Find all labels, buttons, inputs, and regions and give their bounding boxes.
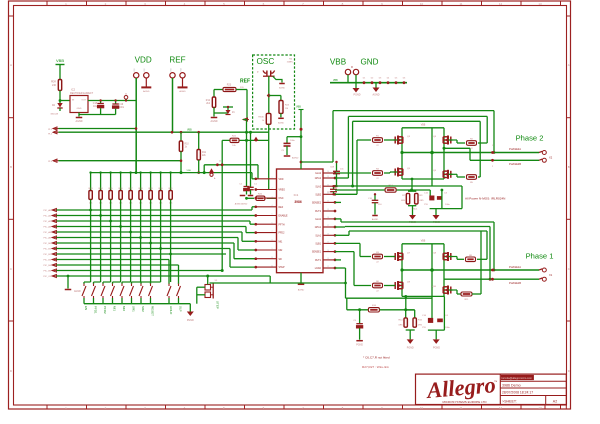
- svg-text:PHASE2A: PHASE2A: [509, 147, 521, 151]
- svg-text:16MHz: 16MHz: [287, 62, 293, 64]
- svg-text:PIC_B5: PIC_B5: [43, 271, 51, 273]
- svg-text:13: 13: [538, 2, 542, 6]
- svg-text:PGND: PGND: [433, 347, 440, 350]
- svg-text:B: B: [10, 165, 12, 169]
- svg-text:3986 Demo: 3986 Demo: [502, 383, 521, 387]
- svg-text:VBB: VBB: [421, 125, 426, 127]
- svg-text:R27,R27 : Wire-link: R27,R27 : Wire-link: [362, 365, 389, 369]
- svg-text:C18: C18: [93, 103, 98, 105]
- svg-text:100n: 100n: [445, 204, 451, 206]
- svg-text:SLP: SLP: [179, 306, 183, 312]
- svg-text:20: 20: [327, 201, 329, 203]
- svg-text:R30D: R30D: [258, 117, 264, 119]
- svg-text:8: 8: [272, 240, 273, 242]
- svg-text:AGND: AGND: [143, 90, 150, 93]
- svg-text:Y5V: Y5V: [424, 204, 429, 206]
- svg-text:PIC_A3: PIC_A3: [43, 226, 51, 229]
- svg-text:RECTIFIER EURECT: RECTIFIER EURECT: [70, 92, 94, 95]
- svg-text:PFD1: PFD1: [94, 306, 98, 314]
- svg-text:HOLD: HOLD: [169, 306, 173, 315]
- svg-text:PGND: PGND: [354, 94, 361, 97]
- svg-text:PIC_A5: PIC_A5: [43, 237, 51, 240]
- svg-text:AGND: AGND: [279, 87, 285, 90]
- svg-text:EN: EN: [84, 306, 88, 310]
- svg-text:OUT1: OUT1: [315, 260, 322, 262]
- svg-text:R10: R10: [185, 144, 190, 146]
- svg-text:AGND: AGND: [298, 289, 305, 292]
- svg-text:1N4148: 1N4148: [50, 114, 58, 116]
- svg-text:PIC_A2: PIC_A2: [43, 220, 51, 223]
- svg-text:B: B: [568, 165, 570, 169]
- svg-text:PGND: PGND: [356, 345, 363, 347]
- svg-text:28/07/2008 18:24:17: 28/07/2008 18:24:17: [502, 391, 533, 395]
- svg-text:15: 15: [327, 242, 329, 244]
- svg-text:PFD2: PFD2: [103, 306, 107, 314]
- svg-text:SLB1: SLB1: [315, 244, 321, 246]
- svg-text:9: 9: [272, 248, 273, 250]
- svg-text:11: 11: [459, 2, 462, 6]
- svg-text:AGND: AGND: [179, 90, 186, 93]
- svg-text:1: 1: [272, 177, 273, 179]
- svg-text:MICROSYSTEMS EUROPE LTD: MICROSYSTEMS EUROPE LTD: [442, 400, 487, 404]
- svg-text:X1: X1: [549, 273, 553, 277]
- svg-text:A: A: [568, 63, 570, 67]
- svg-text:6: 6: [272, 222, 273, 224]
- svg-text:PGND: PGND: [407, 347, 414, 350]
- svg-text:PIC_B0: PIC_B0: [43, 243, 51, 245]
- svg-text:REF: REF: [169, 56, 185, 65]
- svg-text:SR1: SR1: [132, 306, 136, 312]
- svg-text:U$2: U$2: [144, 68, 146, 71]
- svg-text:SR: SR: [279, 259, 283, 261]
- svg-text:VBB: VBB: [296, 106, 301, 109]
- svg-text:GND: GND: [77, 108, 82, 110]
- svg-text:OSC: OSC: [279, 198, 284, 200]
- svg-text:NC1: NC1: [413, 209, 418, 211]
- svg-text:AGND: AGND: [372, 218, 379, 221]
- svg-text:PIC_B2: PIC_B2: [43, 254, 51, 256]
- svg-text:Y5V: Y5V: [422, 327, 427, 329]
- svg-text:lorretta@allegromicro.com: lorretta@allegromicro.com: [502, 376, 532, 380]
- svg-text:Phase 1: Phase 1: [526, 252, 554, 261]
- svg-text:GLA1: GLA1: [315, 218, 322, 221]
- svg-text:5: 5: [272, 214, 273, 216]
- svg-text:1M: 1M: [285, 108, 288, 110]
- svg-text:12: 12: [499, 406, 503, 410]
- svg-text:19: 19: [327, 209, 329, 211]
- svg-text:23: 23: [327, 176, 329, 178]
- svg-text:PHASE1B: PHASE1B: [509, 281, 521, 285]
- svg-text:C19: C19: [119, 104, 124, 106]
- svg-text:VBB: VBB: [421, 241, 426, 243]
- svg-text:PFD2: PFD2: [279, 233, 286, 235]
- svg-text:SLA1: SLA1: [315, 234, 321, 237]
- svg-text:A: A: [10, 63, 12, 67]
- svg-text:Phase 2: Phase 2: [516, 134, 544, 143]
- svg-text:PHASE1A: PHASE1A: [509, 265, 521, 269]
- svg-text:VBB: VBB: [56, 58, 64, 63]
- svg-text:PHASE2B: PHASE2B: [509, 162, 521, 166]
- svg-text:AGND: AGND: [278, 122, 284, 125]
- svg-text:REF: REF: [240, 79, 250, 85]
- svg-text:PIC_B4: PIC_B4: [43, 265, 51, 267]
- svg-text:A2: A2: [553, 399, 557, 403]
- svg-text:VBB: VBB: [330, 57, 346, 66]
- svg-text:PIC_C0: PIC_C0: [43, 276, 51, 278]
- svg-text:OSC: OSC: [257, 57, 275, 66]
- svg-text:AGND: AGND: [211, 120, 218, 123]
- svg-text:7: 7: [272, 231, 273, 233]
- svg-text:VREG: VREG: [279, 190, 286, 192]
- svg-text:STEP: STEP: [279, 267, 285, 269]
- svg-text:SENSE2: SENSE2: [312, 203, 322, 205]
- svg-text:ENABLE: ENABLE: [279, 215, 289, 218]
- svg-text:10: 10: [420, 2, 424, 6]
- svg-text:VDD: VDD: [187, 170, 192, 172]
- svg-text:AGND: AGND: [76, 120, 83, 123]
- svg-text:PIC_B1: PIC_B1: [43, 249, 51, 251]
- svg-text:11: 11: [459, 406, 462, 410]
- svg-text:MI1: MI1: [113, 306, 117, 311]
- svg-text:12: 12: [327, 266, 329, 268]
- svg-text:U$3: U$3: [170, 68, 172, 71]
- svg-text:12: 12: [499, 2, 503, 6]
- svg-text:RESET: RESET: [151, 306, 155, 316]
- svg-text:4: 4: [272, 205, 273, 207]
- svg-text:14: 14: [327, 250, 329, 252]
- svg-text:SENSE1: SENSE1: [312, 252, 322, 254]
- svg-text:2: 2: [272, 188, 273, 190]
- svg-text:PGND: PGND: [187, 319, 194, 322]
- svg-text:R: R: [351, 66, 353, 69]
- svg-text:VBB: VBB: [187, 130, 192, 132]
- svg-text:MI2: MI2: [122, 306, 126, 311]
- svg-text:GHA1: GHA1: [315, 226, 322, 229]
- svg-text:PIC_A4: PIC_A4: [43, 231, 51, 234]
- svg-text:AGND: AGND: [74, 290, 81, 293]
- svg-text:PIC_A1: PIC_A1: [43, 215, 51, 218]
- svg-text:SR2: SR2: [141, 306, 145, 312]
- svg-text:All Power N-MOS: IRLR024N: All Power N-MOS: IRLR024N: [465, 197, 505, 201]
- svg-text:IC1: IC1: [294, 193, 299, 197]
- svg-text:SLA2: SLA2: [315, 185, 321, 188]
- svg-text:* C6,C7,R not fitted: * C6,C7,R not fitted: [363, 356, 390, 360]
- svg-text:24: 24: [327, 171, 329, 173]
- svg-text:13: 13: [327, 258, 329, 260]
- svg-text:>SHEET:: >SHEET:: [502, 399, 517, 403]
- svg-text:100n: 100n: [445, 327, 451, 329]
- svg-text:VDD: VDD: [279, 179, 284, 181]
- svg-text:U$4: U$4: [180, 68, 182, 71]
- svg-text:22: 22: [327, 184, 329, 186]
- svg-text:AGND: AGND: [292, 157, 299, 160]
- svg-text:AGND: AGND: [373, 94, 380, 97]
- svg-text:VDD: VDD: [135, 56, 152, 65]
- svg-text:100n: 100n: [290, 140, 296, 142]
- svg-text:240: 240: [52, 84, 57, 87]
- svg-text:PFTH: PFTH: [279, 224, 285, 226]
- svg-text:OUT: OUT: [81, 100, 86, 102]
- svg-text:Hid: Hid: [289, 59, 292, 61]
- svg-text:3986: 3986: [294, 200, 302, 204]
- svg-text:STEP: STEP: [216, 301, 220, 309]
- svg-text:U$1: U$1: [134, 68, 136, 71]
- svg-text:PIC_A0: PIC_A0: [43, 209, 51, 212]
- svg-text:R12: R12: [206, 100, 211, 102]
- svg-text:10: 10: [271, 257, 273, 259]
- svg-text:11: 11: [271, 265, 273, 267]
- svg-text:GND: GND: [361, 57, 379, 66]
- svg-text:17: 17: [327, 225, 329, 227]
- svg-text:TM: TM: [494, 381, 497, 383]
- svg-text:13: 13: [538, 406, 542, 410]
- svg-text:16: 16: [327, 234, 329, 236]
- svg-text:X2: X2: [549, 155, 553, 159]
- svg-text:PIC_B3: PIC_B3: [43, 260, 51, 262]
- svg-text:GLA2: GLA2: [315, 172, 322, 175]
- svg-text:3: 3: [272, 196, 273, 198]
- svg-text:SLB2: SLB2: [315, 194, 321, 196]
- svg-text:LOAD: LOAD: [315, 267, 322, 270]
- svg-text:GHA2: GHA2: [315, 177, 322, 180]
- svg-text:AGND AGND: AGND AGND: [235, 203, 248, 206]
- svg-text:18: 18: [327, 217, 329, 219]
- svg-text:10: 10: [420, 406, 424, 410]
- svg-text:100n: 100n: [119, 107, 125, 109]
- svg-text:R23: R23: [227, 84, 232, 87]
- svg-text:OUT2: OUT2: [315, 211, 322, 213]
- svg-text:REF: REF: [279, 207, 284, 209]
